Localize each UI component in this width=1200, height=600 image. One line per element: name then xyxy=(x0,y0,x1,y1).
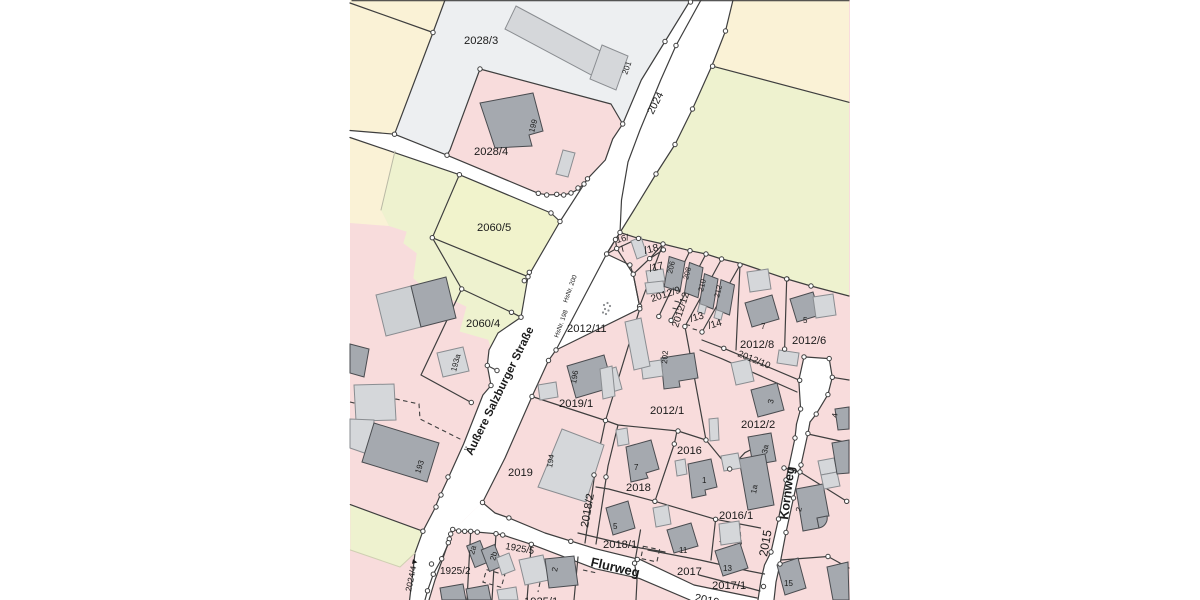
svg-text:7: 7 xyxy=(634,463,639,472)
svg-text:15: 15 xyxy=(784,579,793,588)
svg-text:1925/1: 1925/1 xyxy=(524,596,558,600)
svg-text:5: 5 xyxy=(803,316,808,325)
svg-text:2028/4: 2028/4 xyxy=(474,146,508,158)
svg-text:13: 13 xyxy=(723,564,732,573)
svg-text:2012/2: 2012/2 xyxy=(741,419,775,431)
svg-text:2028/3: 2028/3 xyxy=(464,35,498,47)
svg-text:2017: 2017 xyxy=(677,566,702,578)
svg-text:2019/1: 2019/1 xyxy=(559,398,593,410)
svg-text:2019: 2019 xyxy=(508,467,533,479)
svg-text:2012/1: 2012/1 xyxy=(650,405,684,417)
svg-text:5: 5 xyxy=(613,522,618,531)
svg-text:2018: 2018 xyxy=(626,482,651,494)
svg-text:1925/2: 1925/2 xyxy=(440,566,471,577)
svg-text:2018/1: 2018/1 xyxy=(603,539,637,551)
svg-text:2012/11: 2012/11 xyxy=(567,323,607,335)
svg-text:202: 202 xyxy=(660,350,670,365)
svg-text:2017/1: 2017/1 xyxy=(712,580,746,592)
svg-text:2060/5: 2060/5 xyxy=(477,222,511,234)
svg-text:2012/6: 2012/6 xyxy=(792,335,826,347)
svg-text:1: 1 xyxy=(702,476,707,485)
svg-text:2016: 2016 xyxy=(677,445,702,457)
svg-text:2012/8: 2012/8 xyxy=(740,339,774,351)
svg-text:11: 11 xyxy=(679,546,688,555)
svg-text:7: 7 xyxy=(761,322,766,331)
svg-text:2016/1: 2016/1 xyxy=(719,510,753,522)
svg-text:2060/4: 2060/4 xyxy=(466,318,500,330)
